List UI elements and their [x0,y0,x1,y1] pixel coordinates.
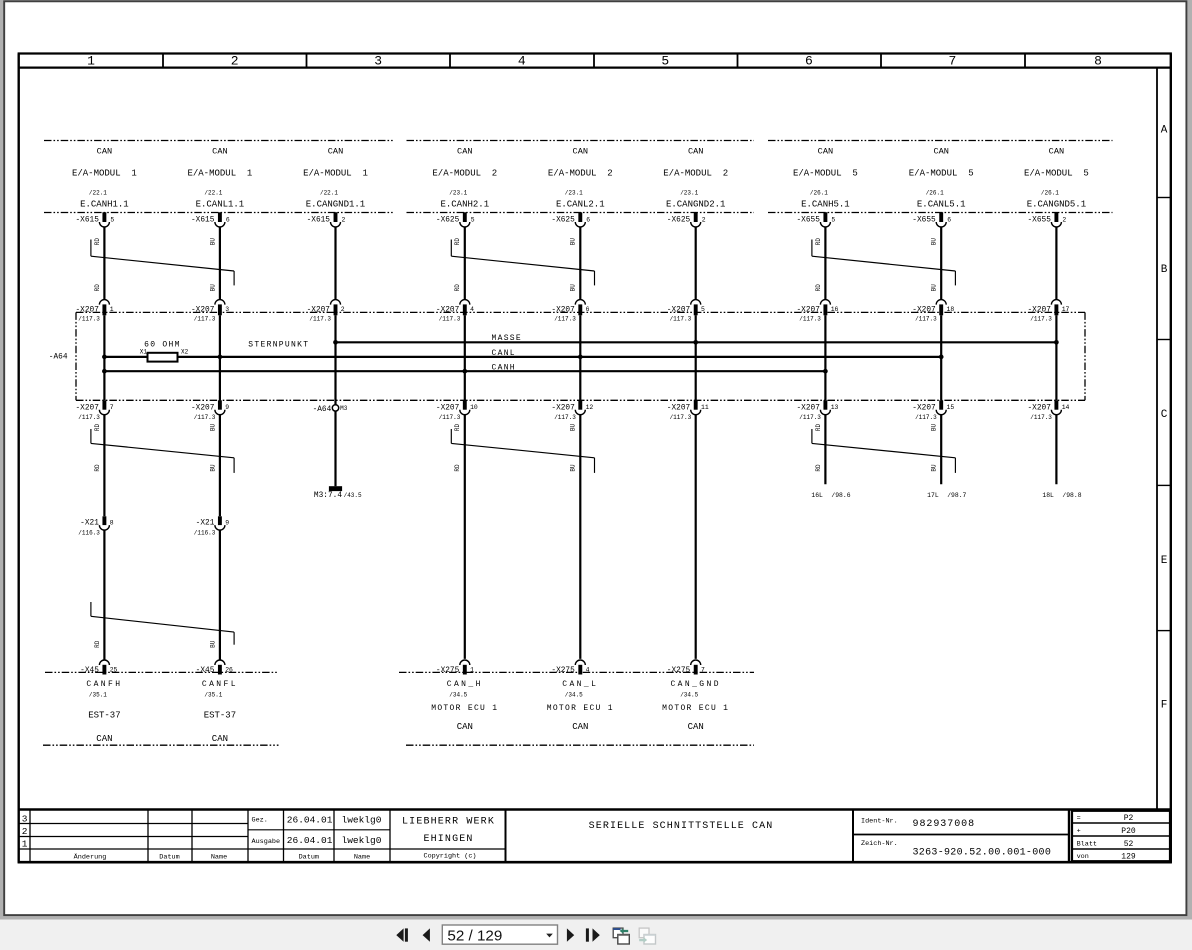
svg-text:-X625: -X625 [667,217,691,225]
svg-text:E.CANGND5.1: E.CANGND5.1 [1027,200,1086,210]
svg-text:129: 129 [1121,852,1136,861]
svg-text:Ausgabe: Ausgabe [252,838,281,846]
svg-text:18L: 18L [1042,492,1054,499]
svg-text:BU: BU [570,238,577,246]
svg-text:F: F [1161,700,1168,712]
svg-text:-X615: -X615 [75,217,99,225]
svg-text:BU: BU [570,424,577,432]
svg-text:/98.6: /98.6 [831,492,850,499]
svg-text:11: 11 [701,404,709,411]
svg-text:/26.1: /26.1 [926,190,944,197]
svg-text:/117.3: /117.3 [554,316,576,323]
svg-text:/117.3: /117.3 [670,414,692,421]
svg-text:+: + [1077,827,1081,835]
svg-text:/35.1: /35.1 [89,692,107,699]
svg-text:Blatt: Blatt [1077,840,1097,848]
svg-text:/26.1: /26.1 [1041,190,1059,197]
svg-text:5: 5 [471,217,475,224]
svg-text:-X21: -X21 [196,520,215,528]
svg-text:BU: BU [931,284,938,292]
svg-text:6: 6 [586,217,590,224]
svg-text:/22.1: /22.1 [204,190,222,197]
svg-text:M3:7.4: M3:7.4 [314,492,342,500]
svg-text:Name: Name [211,853,227,861]
svg-text:16L: 16L [811,492,823,499]
svg-text:-X655: -X655 [1027,217,1051,225]
svg-text:=: = [1077,814,1081,822]
svg-text:26.04.01: 26.04.01 [287,815,333,826]
svg-text:CAN: CAN [97,146,112,156]
svg-text:E/A-MODUL 5: E/A-MODUL 5 [909,168,974,178]
svg-text:RD: RD [454,284,461,292]
svg-text:/117.3: /117.3 [554,414,576,421]
svg-text:-X615: -X615 [307,217,331,225]
svg-text:-X207: -X207 [436,306,460,314]
svg-text:/117.3: /117.3 [915,316,937,323]
svg-text:6: 6 [226,217,230,224]
svg-text:/117.3: /117.3 [439,316,461,323]
svg-text:-X655: -X655 [912,217,936,225]
svg-text:-A64: -A64 [313,406,332,414]
svg-text:/23.1: /23.1 [449,190,467,197]
svg-text:RD: RD [815,238,822,246]
svg-text:EST-37: EST-37 [204,711,236,721]
svg-text:RD: RD [815,464,822,472]
svg-text:CAN: CAN [96,734,112,744]
svg-text:52 / 129: 52 / 129 [447,927,502,944]
svg-text:/98.8: /98.8 [1062,492,1081,499]
svg-text:P2: P2 [1124,814,1134,823]
svg-text:/116.3: /116.3 [78,529,100,536]
svg-text:A: A [1161,125,1168,137]
svg-text:7: 7 [110,404,114,411]
svg-text:-A64: -A64 [49,353,68,361]
svg-text:E/A-MODUL 2: E/A-MODUL 2 [432,168,497,178]
svg-text:3263-920.52.00.001-000: 3263-920.52.00.001-000 [913,848,1052,859]
svg-text:E.CANH2.1: E.CANH2.1 [440,200,489,210]
svg-text:-X207: -X207 [667,306,691,314]
svg-text:RD: RD [94,284,101,292]
svg-text:BU: BU [931,238,938,246]
svg-text:5: 5 [661,54,669,69]
svg-text:3: 3 [22,814,28,825]
svg-text:8: 8 [1094,54,1102,69]
svg-text:lweklg0: lweklg0 [342,835,382,846]
svg-text:2: 2 [342,217,346,224]
svg-text:/117.3: /117.3 [1030,414,1052,421]
svg-text:/22.1: /22.1 [320,190,338,197]
svg-text:BU: BU [931,464,938,472]
svg-text:/117.3: /117.3 [78,316,100,323]
svg-text:6: 6 [947,217,951,224]
svg-text:/116.3: /116.3 [194,529,216,536]
svg-text:/34.5: /34.5 [449,692,467,699]
svg-text:52: 52 [1124,840,1134,849]
svg-text:CAN: CAN [212,734,228,744]
svg-text:-X275: -X275 [436,667,460,675]
svg-text:CAN: CAN [328,146,343,156]
svg-text:/22.1: /22.1 [89,190,107,197]
svg-text:5: 5 [110,217,114,224]
svg-text:EST-37: EST-37 [88,711,120,721]
svg-text:von: von [1077,853,1089,861]
svg-text:/117.3: /117.3 [799,316,821,323]
svg-text:/117.3: /117.3 [1030,316,1052,323]
svg-text:RD: RD [815,284,822,292]
svg-text:13: 13 [831,404,839,411]
svg-text:7: 7 [948,54,956,69]
svg-text:-X207: -X207 [191,404,215,412]
svg-text:-X207: -X207 [551,404,575,412]
svg-text:26: 26 [225,667,233,674]
svg-text:/35.1: /35.1 [204,692,222,699]
svg-text:2: 2 [231,54,239,69]
svg-text:-X207: -X207 [191,306,215,314]
svg-text:4: 4 [586,667,590,674]
svg-text:C: C [1161,409,1168,421]
svg-text:CANH: CANH [492,364,516,373]
svg-text:-X615: -X615 [191,217,215,225]
svg-text:2: 2 [702,217,706,224]
svg-text:1: 1 [22,839,28,850]
svg-text:E.CANL5.1: E.CANL5.1 [917,200,966,210]
svg-text:/34.5: /34.5 [680,692,698,699]
svg-text:CAN: CAN [1049,146,1064,156]
svg-text:-X21: -X21 [80,520,99,528]
svg-text:E/A-MODUL 2: E/A-MODUL 2 [548,168,613,178]
svg-text:X2: X2 [181,348,189,355]
svg-text:-X207: -X207 [912,404,936,412]
svg-text:B: B [1161,264,1168,276]
svg-text:E.CANH5.1: E.CANH5.1 [801,200,850,210]
svg-text:CAN_H: CAN_H [447,680,483,689]
svg-text:CAN: CAN [688,722,704,732]
svg-text:E/A-MODUL 1: E/A-MODUL 1 [303,168,368,178]
svg-text:CAN: CAN [457,722,473,732]
svg-text:RD: RD [94,238,101,246]
svg-text:BU: BU [209,238,216,246]
svg-text:-X207: -X207 [796,306,820,314]
svg-text:/26.1: /26.1 [810,190,828,197]
svg-text:E/A-MODUL 1: E/A-MODUL 1 [72,168,137,178]
svg-text:/117.3: /117.3 [194,414,216,421]
svg-text:4: 4 [518,54,526,69]
svg-text:26.04.01: 26.04.01 [287,835,333,846]
svg-text:BU: BU [570,284,577,292]
svg-text:RD: RD [94,424,101,432]
svg-text:/117.3: /117.3 [799,414,821,421]
svg-text:RD: RD [94,464,101,472]
svg-text:E.CANGND1.1: E.CANGND1.1 [306,200,365,210]
svg-text:60 OHM: 60 OHM [144,340,181,349]
svg-text:SERIELLE SCHNITTSTELLE CAN: SERIELLE SCHNITTSTELLE CAN [589,821,774,832]
svg-text:-X207: -X207 [436,404,460,412]
svg-text:E/A-MODUL 5: E/A-MODUL 5 [1024,168,1089,178]
svg-text:2: 2 [22,826,28,837]
svg-text:/117.3: /117.3 [439,414,461,421]
svg-text:10: 10 [470,404,478,411]
svg-text:-X207: -X207 [912,306,936,314]
svg-text:E.CANGND2.1: E.CANGND2.1 [666,200,725,210]
svg-text:/34.5: /34.5 [565,692,583,699]
svg-text:/98.7: /98.7 [947,492,966,499]
svg-text:RD: RD [94,640,101,648]
svg-text:-X207: -X207 [1027,404,1051,412]
svg-text:6: 6 [805,54,813,69]
svg-text:MOTOR ECU 1: MOTOR ECU 1 [547,704,614,713]
svg-text:LIEBHERR WERK: LIEBHERR WERK [402,816,495,827]
svg-text:E: E [1161,555,1168,567]
svg-text:/43.5: /43.5 [344,492,362,499]
svg-text:-X625: -X625 [436,217,460,225]
svg-text:-X207: -X207 [75,306,99,314]
svg-text:BU: BU [570,464,577,472]
svg-text:CANL: CANL [492,349,516,358]
svg-text:lweklg0: lweklg0 [342,815,382,826]
svg-text:1: 1 [470,667,474,674]
svg-text:2: 2 [1062,217,1066,224]
svg-text:-X625: -X625 [551,217,575,225]
svg-text:/117.3: /117.3 [915,414,937,421]
svg-text:-X207: -X207 [796,404,820,412]
svg-text:/23.1: /23.1 [565,190,583,197]
svg-text:Datum: Datum [159,853,179,861]
svg-text:CAN: CAN [572,722,588,732]
svg-text:3: 3 [374,54,382,69]
svg-text:-X207: -X207 [667,404,691,412]
svg-text:8: 8 [110,519,114,526]
svg-text:Gez.: Gez. [252,817,268,825]
svg-text:Zeich-Nr.: Zeich-Nr. [861,840,898,848]
svg-text:-X207: -X207 [1027,306,1051,314]
svg-text:7: 7 [701,667,705,674]
svg-text:-X655: -X655 [796,217,820,225]
svg-text:CAN: CAN [933,146,948,156]
svg-text:M3: M3 [340,405,348,412]
svg-text:-X275: -X275 [667,667,691,675]
svg-text:CAN: CAN [688,146,703,156]
svg-text:MASSE: MASSE [492,334,523,343]
svg-text:CAN: CAN [573,146,588,156]
svg-text:/117.3: /117.3 [194,316,216,323]
svg-text:CAN_L: CAN_L [562,680,598,689]
svg-text:CAN: CAN [818,146,833,156]
svg-text:Name: Name [354,853,370,861]
svg-text:9: 9 [225,519,229,526]
svg-text:STERNPUNKT: STERNPUNKT [248,340,309,349]
svg-text:1: 1 [87,54,95,69]
svg-text:Änderung: Änderung [74,852,107,861]
svg-text:BU: BU [931,424,938,432]
svg-text:5: 5 [831,217,835,224]
svg-text:E/A-MODUL 5: E/A-MODUL 5 [793,168,858,178]
svg-text:-X275: -X275 [551,667,575,675]
svg-text:E/A-MODUL 2: E/A-MODUL 2 [663,168,728,178]
svg-text:/117.3: /117.3 [78,414,100,421]
svg-text:CAN: CAN [457,146,472,156]
svg-text:-X45: -X45 [80,667,99,675]
svg-text:/23.1: /23.1 [680,190,698,197]
svg-text:BU: BU [209,424,216,432]
svg-text:Ident-Nr.: Ident-Nr. [861,817,898,825]
svg-text:/117.3: /117.3 [670,316,692,323]
svg-text:MOTOR ECU 1: MOTOR ECU 1 [431,704,498,713]
svg-text:982937008: 982937008 [913,819,976,830]
svg-text:-X207: -X207 [307,306,331,314]
svg-text:E/A-MODUL 1: E/A-MODUL 1 [187,168,252,178]
svg-text:17L: 17L [927,492,939,499]
svg-text:CAN_GND: CAN_GND [670,680,720,689]
svg-text:14: 14 [1062,404,1070,411]
svg-text:RD: RD [815,424,822,432]
svg-text:RD: RD [454,238,461,246]
svg-text:9: 9 [225,404,229,411]
svg-text:BU: BU [209,464,216,472]
svg-text:E.CANL1.1: E.CANL1.1 [196,200,245,210]
svg-text:15: 15 [947,404,955,411]
svg-text:-X207: -X207 [551,306,575,314]
svg-text:CANFH: CANFH [86,680,122,689]
svg-text:-X45: -X45 [196,667,215,675]
svg-text:X1: X1 [140,348,148,355]
svg-text:MOTOR ECU 1: MOTOR ECU 1 [662,704,729,713]
svg-text:/117.3: /117.3 [309,316,331,323]
svg-text:BU: BU [209,640,216,648]
svg-text:BU: BU [209,284,216,292]
svg-text:E.CANL2.1: E.CANL2.1 [556,200,605,210]
svg-text:RD: RD [454,464,461,472]
svg-text:CANFL: CANFL [202,680,238,689]
svg-text:Copyright (c): Copyright (c) [423,853,476,861]
svg-text:RD: RD [454,424,461,432]
svg-text:P20: P20 [1121,827,1136,836]
svg-text:-X207: -X207 [75,404,99,412]
svg-text:Datum: Datum [299,853,319,861]
svg-text:CAN: CAN [212,146,227,156]
svg-text:E.CANH1.1: E.CANH1.1 [80,200,129,210]
svg-text:EHINGEN: EHINGEN [423,834,473,845]
svg-text:25: 25 [110,667,118,674]
svg-text:12: 12 [586,404,594,411]
